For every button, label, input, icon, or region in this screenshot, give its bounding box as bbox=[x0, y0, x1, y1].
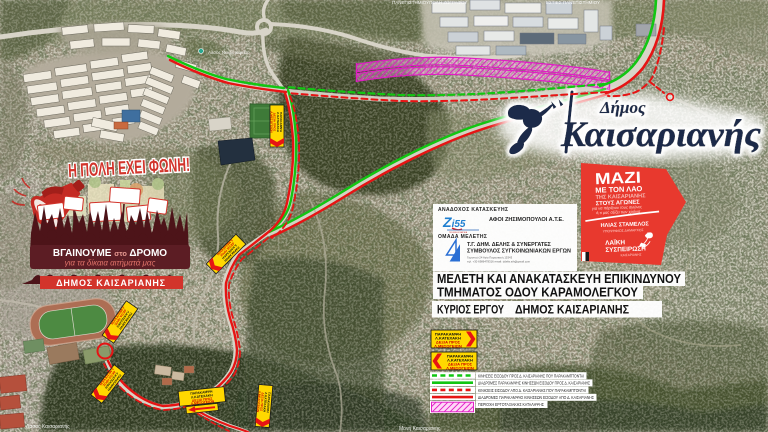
svg-text:ΜΕΛΕΤΗ ΚΑΙ ΑΝΑΚΑΤΑΣΚΕΥΗ ΕΠΙΚΙΝ: ΜΕΛΕΤΗ ΚΑΙ ΑΝΑΚΑΤΑΣΚΕΥΗ ΕΠΙΚΙΝΔΥΝΟΥ bbox=[437, 272, 682, 286]
svg-text:ΑΝΑΔΟΧΟΣ ΚΑΤΑΣΚΕΥΗΣ: ΑΝΑΔΟΧΟΣ ΚΑΤΑΣΚΕΥΗΣ bbox=[438, 207, 508, 213]
svg-text:ΟΜΑΔΑ ΜΕΛΕΤΗΣ: ΟΜΑΔΑ ΜΕΛΕΤΗΣ bbox=[438, 234, 487, 240]
svg-text:ΕΣΤΙΕΣ ΠΑΝΕΠΙΣΤΗΜΙΟΥ: ΕΣΤΙΕΣ ΠΑΝΕΠΙΣΤΗΜΙΟΥ bbox=[546, 0, 600, 5]
svg-text:για τα δίκαια αιτήματά μας: για τα δίκαια αιτήματά μας bbox=[65, 259, 156, 268]
svg-text:ΔΗΜΟΣ ΚΑΙΣΑΡΙΑΝΗΣ: ΔΗΜΟΣ ΚΑΙΣΑΡΙΑΝΗΣ bbox=[56, 278, 166, 288]
svg-text:ΠΑΝΕΠΙΣΤΗΜΙΟΥΠΟΛΗ ΖΩΓΡΑΦΟΥ: ΠΑΝΕΠΙΣΤΗΜΙΟΥΠΟΛΗ ΖΩΓΡΑΦΟΥ bbox=[392, 0, 467, 5]
svg-text:ΚΑΙΣΑΡΙΑΝΗΣ: ΚΑΙΣΑΡΙΑΝΗΣ bbox=[621, 253, 642, 258]
svg-text:Τ.Γ. ΔΗΜ. ΔΕΛΗΣ & ΣΥΝΕΡΓΑΤΕΣ: Τ.Γ. ΔΗΜ. ΔΕΛΗΣ & ΣΥΝΕΡΓΑΤΕΣ bbox=[467, 242, 552, 248]
svg-text:ΚΙΝΗΣΕΙΣ ΕΙΣΟΔΟΥ ΑΠΟ Δ. ΚΑΙΣΑΡ: ΚΙΝΗΣΕΙΣ ΕΙΣΟΔΟΥ ΑΠΟ Δ. ΚΑΙΣΑΡΙΑΝΗΣ ΠΟΥ … bbox=[478, 388, 586, 393]
svg-text:ΔΙΑΔΡΟΜΕΣ ΠΑΡΑΚΑΜΨΗΣ ΚΙΝΗΣΕΩΝ: ΔΙΑΔΡΟΜΕΣ ΠΑΡΑΚΑΜΨΗΣ ΚΙΝΗΣΕΩΝ ΕΙΣΟΔΟΥ ΑΠ… bbox=[478, 395, 594, 400]
svg-text:Λ.ΜΕΣΟΓΕΙΩΝ: Λ.ΜΕΣΟΓΕΙΩΝ bbox=[434, 343, 462, 348]
svg-text:Μονή Καισαριανής: Μονή Καισαριανής bbox=[399, 425, 441, 432]
svg-text:ΤΜΗΜΑΤΟΣ ΟΔΟΥ ΚΑΡΑΜΟΛΕΓΚΟΥ: ΤΜΗΜΑΤΟΣ ΟΔΟΥ ΚΑΡΑΜΟΛΕΓΚΟΥ bbox=[437, 286, 639, 300]
svg-text:Καισαριανής: Καισαριανής bbox=[560, 114, 761, 154]
svg-text:Δάσος Καισαριανής: Δάσος Καισαριανής bbox=[26, 423, 70, 430]
svg-text:ΚΥΡΙΟΣ ΕΡΓΟΥ: ΚΥΡΙΟΣ ΕΡΓΟΥ bbox=[437, 303, 504, 317]
svg-text:Αλσος Νεκροταφείου: Αλσος Νεκροταφείου bbox=[208, 50, 250, 55]
svg-text:ΒΓΑΙΝΟΥΜΕ στο ΔΡΟΜΟ: ΒΓΑΙΝΟΥΜΕ στο ΔΡΟΜΟ bbox=[53, 248, 167, 259]
svg-text:ΔΗΜΟΣ ΚΑΙΣΑΡΙΑΝΗΣ: ΔΗΜΟΣ ΚΑΙΣΑΡΙΑΝΗΣ bbox=[515, 303, 629, 317]
svg-text:τηλ. +30 6986478316 email: dd: τηλ. +30 6986478316 email: ddelis.sth@gm… bbox=[467, 260, 531, 264]
svg-text:ΣΥΜΒΟΥΛΟΣ ΣΥΓΚΟΙΝΩΝΙΑΚΩΝ ΕΡΓΩΝ: ΣΥΜΒΟΥΛΟΣ ΣΥΓΚΟΙΝΩΝΙΑΚΩΝ ΕΡΓΩΝ bbox=[467, 249, 571, 255]
svg-text:ΠΕΡΙΟΧΗ ΕΡΓΟΤΑΞΙΑΚΗΣ ΚΑΤΑΛΗΨΗΣ: ΠΕΡΙΟΧΗ ΕΡΓΟΤΑΞΙΑΚΗΣ ΚΑΤΑΛΗΨΗΣ bbox=[478, 402, 544, 407]
svg-text:Λ.ΜΕΣΟΓΕΙΩΝ: Λ.ΜΕΣΟΓΕΙΩΝ bbox=[446, 365, 474, 370]
svg-text:ΚΙΝΗΣΕΙΣ ΕΙΣΟΔΟΥ ΠΡΟΣ Δ. ΚΑΙΣΑ: ΚΙΝΗΣΕΙΣ ΕΙΣΟΔΟΥ ΠΡΟΣ Δ. ΚΑΙΣΑΡΙΑΝΗΣ ΠΟΥ… bbox=[478, 373, 584, 378]
svg-text:ΔΙΑΔΡΟΜΕΣ ΠΑΡΑΚΑΜΨΗΣ ΚΙΝΗΣΕΩΝ: ΔΙΑΔΡΟΜΕΣ ΠΑΡΑΚΑΜΨΗΣ ΚΙΝΗΣΕΩΝ ΕΙΣΟΔΟΥ ΠΡ… bbox=[478, 381, 590, 386]
svg-text:ΑΦΟΙ ΖΗΣΙΜΟΠΟΥΛΟΙ Α.Τ.Ε.: ΑΦΟΙ ΖΗΣΙΜΟΠΟΥΛΟΙ Α.Τ.Ε. bbox=[489, 217, 564, 223]
svg-text:Λ.ΜΕΣΟΓΕΙΩΝ: Λ.ΜΕΣΟΓΕΙΩΝ bbox=[269, 111, 273, 133]
